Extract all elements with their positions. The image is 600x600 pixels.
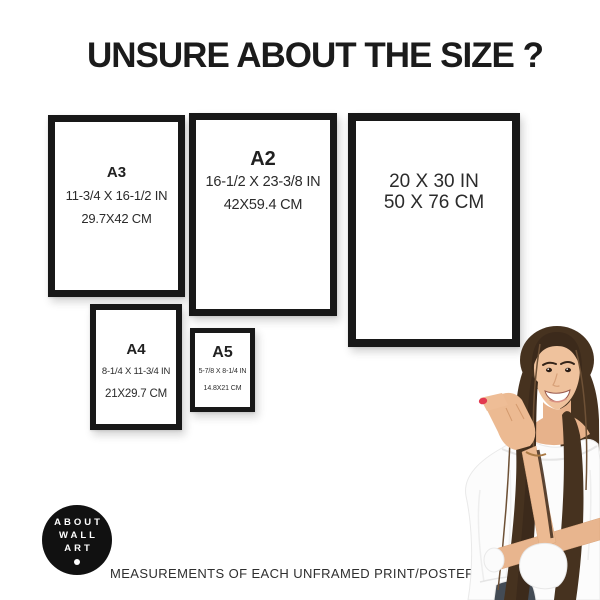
frame-a4: A4 8-1/4 X 11-3/4 IN 21X29.7 CM [90,304,182,430]
frame-a5: A5 5-7/8 X 8-1/4 IN 14.8X21 CM [190,328,255,412]
brand-logo-line1: ABOUT [51,516,103,529]
woman-pointing-photo [440,320,600,600]
brand-logo: ABOUT WALL ART [42,505,112,575]
page-title: UNSURE ABOUT THE SIZE ? [30,36,600,76]
frame-a3-inches: 11-3/4 X 16-1/2 IN [66,184,168,207]
frame-a3-label: A3 [107,161,126,184]
frame-20x30-cm: 50 X 76 CM [384,192,484,213]
frame-a2: A2 16-1/2 X 23-3/8 IN 42X59.4 CM [189,113,337,316]
frame-a5-label: A5 [212,343,232,363]
frame-a5-inches: 5-7/8 X 8-1/4 IN [199,363,247,380]
frame-a4-cm: 21X29.7 CM [105,383,167,405]
frame-20x30: 20 X 30 IN 50 X 76 CM [348,113,520,347]
size-guide-graphic: UNSURE ABOUT THE SIZE ? A3 11-3/4 X 16-1… [0,0,600,600]
brand-logo-line2: WALL [56,529,98,542]
brand-logo-dot-icon [74,559,80,565]
frame-20x30-inches: 20 X 30 IN [389,171,479,192]
frame-a3: A3 11-3/4 X 16-1/2 IN 29.7X42 CM [48,115,185,297]
brand-logo-line3: ART [61,542,93,555]
frame-a2-cm: 42X59.4 CM [224,194,303,217]
frame-a5-cm: 14.8X21 CM [204,380,242,397]
frame-a3-cm: 29.7X42 CM [81,207,151,230]
frame-a4-inches: 8-1/4 X 11-3/4 IN [102,361,170,383]
frame-a2-inches: 16-1/2 X 23-3/8 IN [206,171,321,194]
frame-a2-label: A2 [250,147,276,171]
frame-a4-label: A4 [126,339,145,361]
footer-caption: MEASUREMENTS OF EACH UNFRAMED PRINT/POST… [110,566,445,581]
